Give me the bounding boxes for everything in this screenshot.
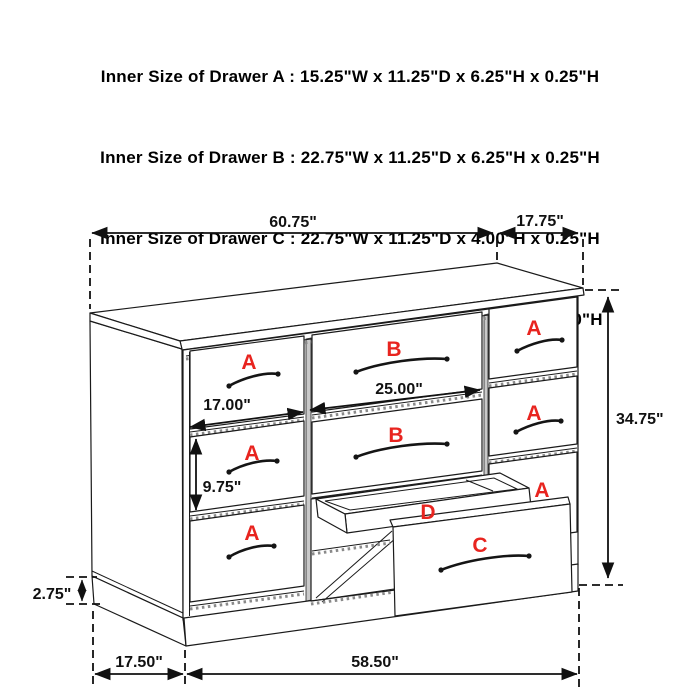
- label-base-height: 2.75": [33, 586, 72, 603]
- drawer-a-top-left: [190, 336, 304, 429]
- divider-left: [306, 338, 311, 601]
- side-panel: [90, 321, 183, 618]
- label-left-drawer-height: 9.75": [203, 479, 242, 496]
- label-base-depth: 17.50": [115, 654, 163, 671]
- label-base-width: 58.50": [351, 654, 399, 671]
- dresser-line-drawing: 60.75" 17.75" 34.75" 17.00" 25.00" 9.75"…: [0, 0, 700, 700]
- label-overall-width: 60.75": [269, 214, 317, 231]
- label-overall-height: 34.75": [616, 411, 664, 428]
- dimension-diagram-page: Inner Size of Drawer A : 15.25"W x 11.25…: [0, 0, 700, 700]
- label-top-depth: 17.75": [516, 213, 564, 230]
- letter-a-mid-right: A: [526, 402, 541, 425]
- label-middle-drawer-width: 25.00": [375, 381, 423, 398]
- label-left-drawer-width: 17.00": [203, 397, 251, 414]
- drawer-a-mid-left: [190, 421, 304, 512]
- dresser-cabinet: [90, 263, 584, 646]
- letter-a-top-left: A: [241, 351, 256, 374]
- letter-c-drawer: C: [472, 534, 487, 557]
- letter-a-bottom-left: A: [244, 522, 259, 545]
- letter-a-bottom-right: A: [534, 479, 549, 502]
- letter-a-mid-left: A: [244, 442, 259, 465]
- drawer-a-bottom-left: [190, 505, 304, 602]
- letter-a-top-right: A: [526, 317, 541, 340]
- letter-d-tray: D: [420, 501, 435, 524]
- letter-b-top: B: [386, 338, 401, 361]
- letter-b-bottom: B: [388, 424, 403, 447]
